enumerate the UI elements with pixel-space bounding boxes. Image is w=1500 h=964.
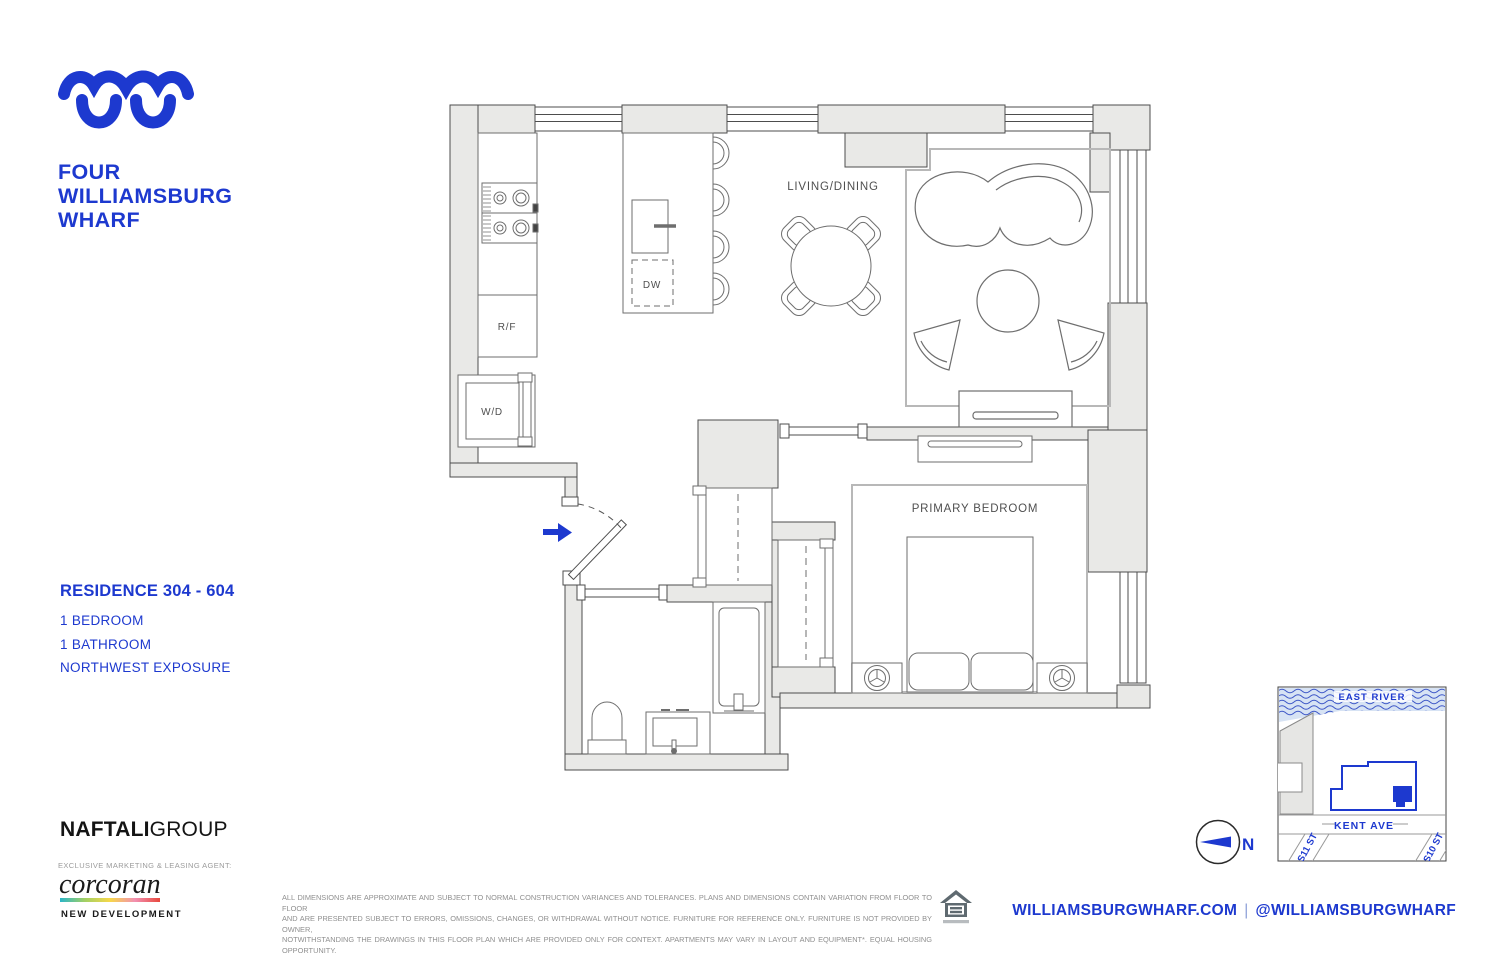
developer-logo: NAFTALIGROUP [60,818,228,842]
compass-north-label: N [1242,835,1254,854]
bathroom [588,602,765,754]
living-furniture [914,164,1104,427]
wave-logo-icon [58,62,194,144]
floor-plan: LIVING/DINING PRIMARY BEDROOM R/F W/D DW [440,85,1160,785]
site-map: N EAST RIVER [1185,675,1460,870]
pillow-icon [971,653,1033,690]
accent-chair-icon [914,320,960,370]
website-link[interactable]: WILLIAMSBURGWHARF.COM [1012,902,1237,919]
washer-dryer-label: W/D [481,407,503,418]
living-dining-label: LIVING/DINING [787,181,879,193]
entry-door-leaf [568,520,626,580]
kitchen-island [623,133,729,313]
lamp-icon [865,666,890,691]
residence-location-marker [1393,786,1412,802]
pillow-icon [909,653,969,690]
legal-disclaimer: ALL DIMENSIONS ARE APPROXIMATE AND SUBJE… [282,893,932,957]
footer-links: WILLIAMSBURGWHARF.COM|@WILLIAMSBURGWHARF [1012,902,1456,920]
brand-line: FOUR [58,160,232,184]
residence-title: RESIDENCE 304 - 604 [60,582,234,601]
entry-arrow-icon [543,523,572,542]
equal-housing-icon [939,889,973,925]
door-swing-arc [578,504,621,528]
disclaimer-line: ALL DIMENSIONS ARE APPROXIMATE AND SUBJE… [282,893,932,914]
brand-line: WHARF [58,208,232,232]
tv-console-icon [959,391,1072,427]
coffee-table-icon [977,270,1039,332]
refrigerator-label: R/F [498,322,517,333]
kitchen [458,133,729,447]
dining-set [778,213,884,319]
social-handle-link[interactable]: @WILLIAMSBURGWHARF [1256,902,1456,919]
brand-line: WILLIAMSBURG [58,184,232,208]
lamp-icon [1050,666,1075,691]
floorplan-sheet: FOUR WILLIAMSBURG WHARF RESIDENCE 304 - … [0,0,1500,964]
compass-icon: N [1197,821,1255,864]
feature-bedrooms: 1 BEDROOM [60,609,231,633]
feature-bathrooms: 1 BATHROOM [60,633,231,657]
corcoran-rainbow-bar [60,898,160,902]
building-footprint [1331,762,1416,810]
dining-table-icon [791,226,871,306]
vanity-sink-icon [646,710,710,754]
feature-exposure: NORTHWEST EXPOSURE [60,656,231,680]
footer-divider: | [1237,902,1255,919]
kent-ave-label: KENT AVE [1334,820,1394,832]
developer-name-bold: NAFTALI [60,818,150,841]
disclaimer-line: AND ARE PRESENTED SUBJECT TO ERRORS, OMI… [282,914,932,935]
residence-features: 1 BEDROOM 1 BATHROOM NORTHWEST EXPOSURE [60,609,231,680]
agent-division: NEW DEVELOPMENT [61,909,182,920]
island-stools [713,137,729,305]
bedroom-door [789,427,858,435]
developer-name-light: GROUP [150,818,228,841]
river-label: EAST RIVER [1338,692,1405,703]
brand-name: FOUR WILLIAMSBURG WHARF [58,160,232,232]
primary-bedroom-label: PRIMARY BEDROOM [912,503,1039,515]
dresser-icon [918,436,1032,462]
accent-chair-icon [1058,320,1104,370]
agent-logo: corcoran [59,869,161,901]
dishwasher-label: DW [643,280,661,291]
bathroom-door [585,589,659,597]
stove-icon [482,183,538,243]
disclaimer-line: NOTWITHSTANDING THE DRAWINGS IN THIS FLO… [282,935,932,956]
bedroom-furniture [852,436,1087,693]
toilet-icon [588,702,626,754]
bathtub-icon [713,602,765,713]
curved-sofa-icon [915,164,1092,247]
